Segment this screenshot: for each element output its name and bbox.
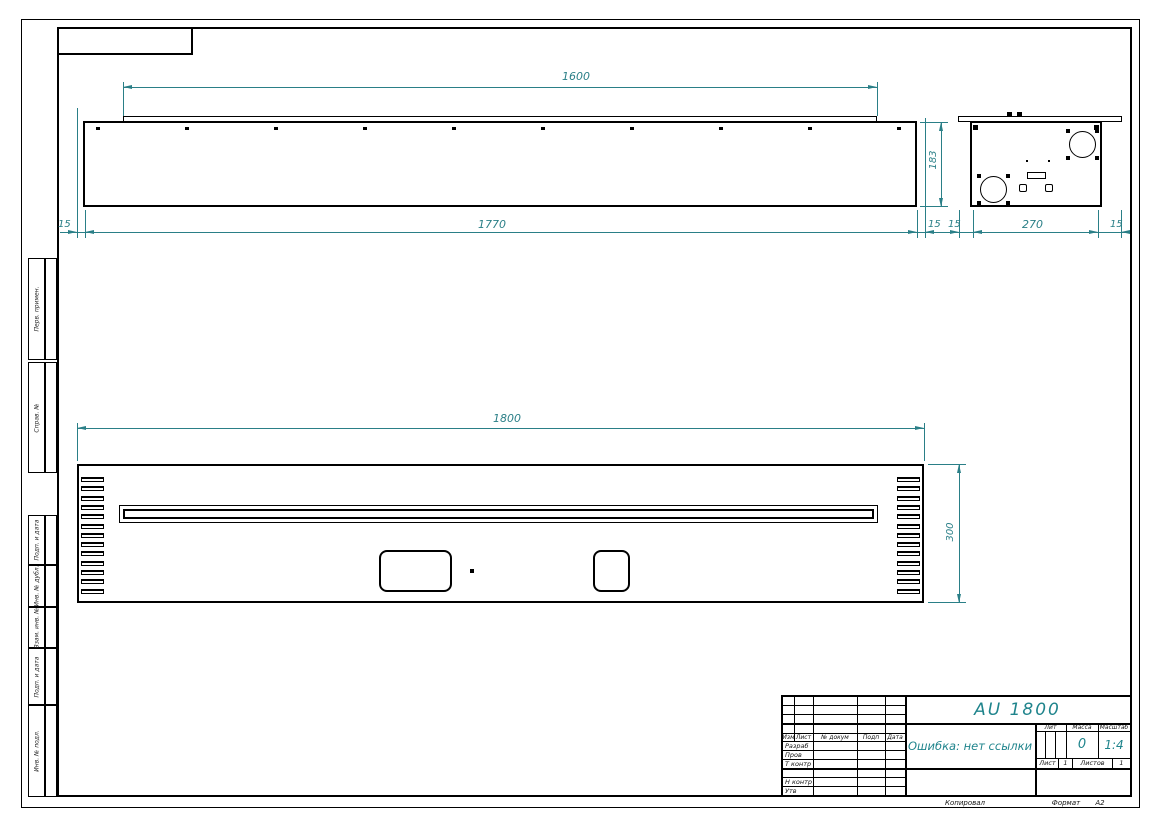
mounting-hole-dot: [185, 127, 189, 130]
margin-box-divider: [44, 607, 46, 648]
margin-box-divider: [44, 648, 46, 705]
margin-box-podp-data-2: Подп. и дата: [28, 648, 57, 705]
mass-value: 0: [1066, 731, 1098, 758]
dimension-line: [77, 428, 924, 429]
top-left-reference-box: [57, 27, 193, 55]
dim-side-offset-left: 15: [948, 220, 961, 230]
top-view-body: [83, 121, 917, 207]
dimension-arrow: [85, 230, 94, 234]
format-label: Формат: [1048, 799, 1084, 807]
vent-slat: [897, 496, 920, 501]
fan-mount-hole: [977, 174, 981, 178]
vent-slat: [897, 561, 920, 566]
vent-slat: [81, 561, 104, 566]
header-col-data: Дата: [885, 733, 905, 741]
vent-slat: [81, 496, 104, 501]
dim-front-height: 300: [946, 516, 956, 548]
dimension-arrow: [925, 230, 934, 234]
left-louvers: [81, 477, 104, 597]
margin-label: Взам. инв. №: [34, 607, 41, 648]
extension-line: [925, 118, 926, 238]
margin-box-sprav-no: Справ. №: [28, 362, 57, 473]
front-opening-small: [593, 550, 630, 592]
title-block-line: [1045, 731, 1046, 758]
mounting-hole-dot: [363, 127, 367, 130]
vent-slat: [897, 486, 920, 491]
dimension-arrow: [950, 230, 959, 234]
dim-side-body-width: 270: [1022, 219, 1043, 230]
mounting-hole-dot: [897, 127, 901, 130]
vent-slat: [81, 579, 104, 584]
dimension-arrow: [1089, 230, 1098, 234]
sheet-label: Лист: [1037, 758, 1058, 768]
mounting-hole-dot: [630, 127, 634, 130]
side-view-dot: [1026, 160, 1028, 162]
margin-label: Перв. примен.: [34, 286, 41, 331]
vent-slat: [81, 551, 104, 556]
dimension-arrow: [68, 230, 77, 234]
margin-box-divider: [44, 362, 46, 473]
dim-top-plate-width: 1600: [562, 71, 590, 82]
dim-edge-offset-right: 15: [928, 220, 941, 230]
extension-line: [917, 210, 918, 238]
mass-label: Масса: [1066, 723, 1098, 731]
dim-overall-width: 1800: [493, 413, 521, 424]
title-block-line: [783, 714, 905, 715]
margin-box-vzam-inv: Взам. инв. №: [28, 607, 57, 648]
fan-mount-hole: [1095, 156, 1099, 160]
drawing-sheet: Перв. примен. Справ. № Подп. и дата Инв.…: [0, 0, 1157, 831]
header-col-ndokum: № докум: [813, 733, 857, 741]
title-block-line: [857, 697, 858, 795]
vent-slat: [81, 533, 104, 538]
dimension-arrow: [123, 85, 132, 89]
vent-slat: [81, 505, 104, 510]
title-block-line: [1055, 731, 1056, 758]
dimension-arrow: [1121, 230, 1130, 234]
drawing-title: AU 1800: [905, 697, 1130, 723]
margin-label: Подп. и дата: [34, 656, 41, 697]
vent-slat: [897, 551, 920, 556]
row-label-razrab: Разраб: [785, 741, 815, 750]
vent-slat: [897, 477, 920, 482]
extension-line: [77, 108, 78, 238]
extension-line: [877, 82, 878, 116]
dimension-arrow: [868, 85, 877, 89]
vent-slat: [897, 505, 920, 510]
fan-cutout-top-right: [1069, 131, 1096, 158]
right-louvers: [897, 477, 920, 597]
mounting-hole-dot: [452, 127, 456, 130]
dim-body-depth: 183: [929, 144, 939, 176]
front-view-body: [77, 464, 924, 603]
sheets-value: 1: [1113, 758, 1130, 768]
extension-line: [920, 122, 948, 123]
margin-label: Справ. №: [34, 403, 41, 432]
sheets-label: Листов: [1073, 758, 1112, 768]
front-view-dot: [470, 569, 474, 573]
mounting-hole-dot: [274, 127, 278, 130]
margin-box-divider: [44, 258, 46, 360]
fan-mount-hole: [1006, 201, 1010, 205]
fan-mount-hole: [1066, 156, 1070, 160]
mounting-hole-dot: [541, 127, 545, 130]
fan-mount-hole: [977, 201, 981, 205]
dimension-arrow: [77, 426, 86, 430]
scale-value: 1:4: [1098, 731, 1130, 758]
mounting-hole-dot: [719, 127, 723, 130]
margin-box-divider: [44, 565, 46, 607]
margin-label: Подп. и дата: [34, 520, 41, 561]
margin-label: Инв. № подл.: [34, 730, 41, 771]
vent-slat: [897, 524, 920, 529]
margin-box-divider: [44, 515, 46, 565]
vent-slat: [897, 533, 920, 538]
side-view-dot: [1048, 160, 1050, 162]
vent-slat: [81, 570, 104, 575]
fan-mount-hole: [1006, 174, 1010, 178]
fan-mount-hole: [1095, 129, 1099, 133]
dimension-arrow: [915, 426, 924, 430]
row-label-prov: Пров: [785, 750, 815, 759]
drawing-note: Ошибка: нет ссылки: [905, 723, 1035, 768]
header-col-podp: Подп: [857, 733, 885, 741]
extension-line: [1098, 210, 1099, 238]
dimension-line: [941, 122, 942, 207]
margin-box-inv-dubl: Инв. № дубл.: [28, 565, 57, 607]
vent-slat: [81, 589, 104, 594]
side-view-slot: [1027, 172, 1046, 179]
fan-cutout-bottom-left: [980, 176, 1007, 203]
margin-label: Инв. № дубл.: [34, 565, 41, 606]
side-view-small-hole: [1019, 184, 1027, 192]
front-opening-large: [379, 550, 452, 592]
row-label-tkontr: Т контр: [785, 759, 815, 768]
extension-line: [920, 206, 948, 207]
format-value: А2: [1090, 799, 1110, 807]
vent-slat: [897, 514, 920, 519]
scale-label: Масштаб: [1098, 723, 1130, 731]
title-block-line: [783, 768, 1130, 770]
side-view-tab: [1017, 112, 1022, 117]
vent-slat: [81, 477, 104, 482]
top-view-holes: [96, 127, 906, 133]
dimension-arrow: [908, 230, 917, 234]
vent-slat: [897, 579, 920, 584]
vent-slat: [897, 570, 920, 575]
title-block-line: [885, 697, 886, 795]
dimension-line: [959, 464, 960, 603]
lit-label: Лит: [1035, 723, 1066, 731]
vent-slat: [897, 589, 920, 594]
header-col-izm: Изм: [783, 733, 794, 741]
vent-slat: [81, 514, 104, 519]
flame-slot-inner: [123, 509, 874, 519]
header-col-list: Лист: [794, 733, 813, 741]
vent-slat: [897, 542, 920, 547]
margin-box-podp-data-1: Подп. и дата: [28, 515, 57, 565]
margin-box-divider: [44, 705, 46, 797]
dimension-arrow: [957, 464, 961, 473]
extension-line: [924, 423, 925, 461]
side-view-small-hole: [1045, 184, 1053, 192]
row-label-nkontr: Н контр: [785, 777, 815, 786]
margin-box-inv-podl: Инв. № подл.: [28, 705, 57, 797]
dimension-arrow: [957, 594, 961, 603]
sheet-value: 1: [1059, 758, 1072, 768]
row-label-utv: Утв: [785, 786, 815, 795]
vent-slat: [81, 486, 104, 491]
title-block-line: [783, 705, 905, 706]
dim-body-width: 1770: [478, 219, 506, 230]
vent-slat: [81, 524, 104, 529]
copied-label: Копировал: [935, 799, 995, 807]
title-block: AU 1800 Ошибка: нет ссылки Изм Лист № до…: [781, 695, 1132, 797]
mounting-hole-dot: [808, 127, 812, 130]
dimension-line: [60, 232, 1130, 233]
dim-edge-offset-left: 15: [58, 220, 71, 230]
side-view-corner-mark: [973, 125, 978, 130]
side-view-tab: [1007, 112, 1012, 117]
margin-box-perv-primen: Перв. примен.: [28, 258, 57, 360]
mounting-hole-dot: [96, 127, 100, 130]
fan-mount-hole: [1066, 129, 1070, 133]
vent-slat: [81, 542, 104, 547]
dim-side-offset-right: 15: [1110, 220, 1123, 230]
dimension-arrow: [973, 230, 982, 234]
dimension-line: [123, 87, 877, 88]
dimension-arrow: [939, 198, 943, 207]
dimension-arrow: [939, 122, 943, 131]
